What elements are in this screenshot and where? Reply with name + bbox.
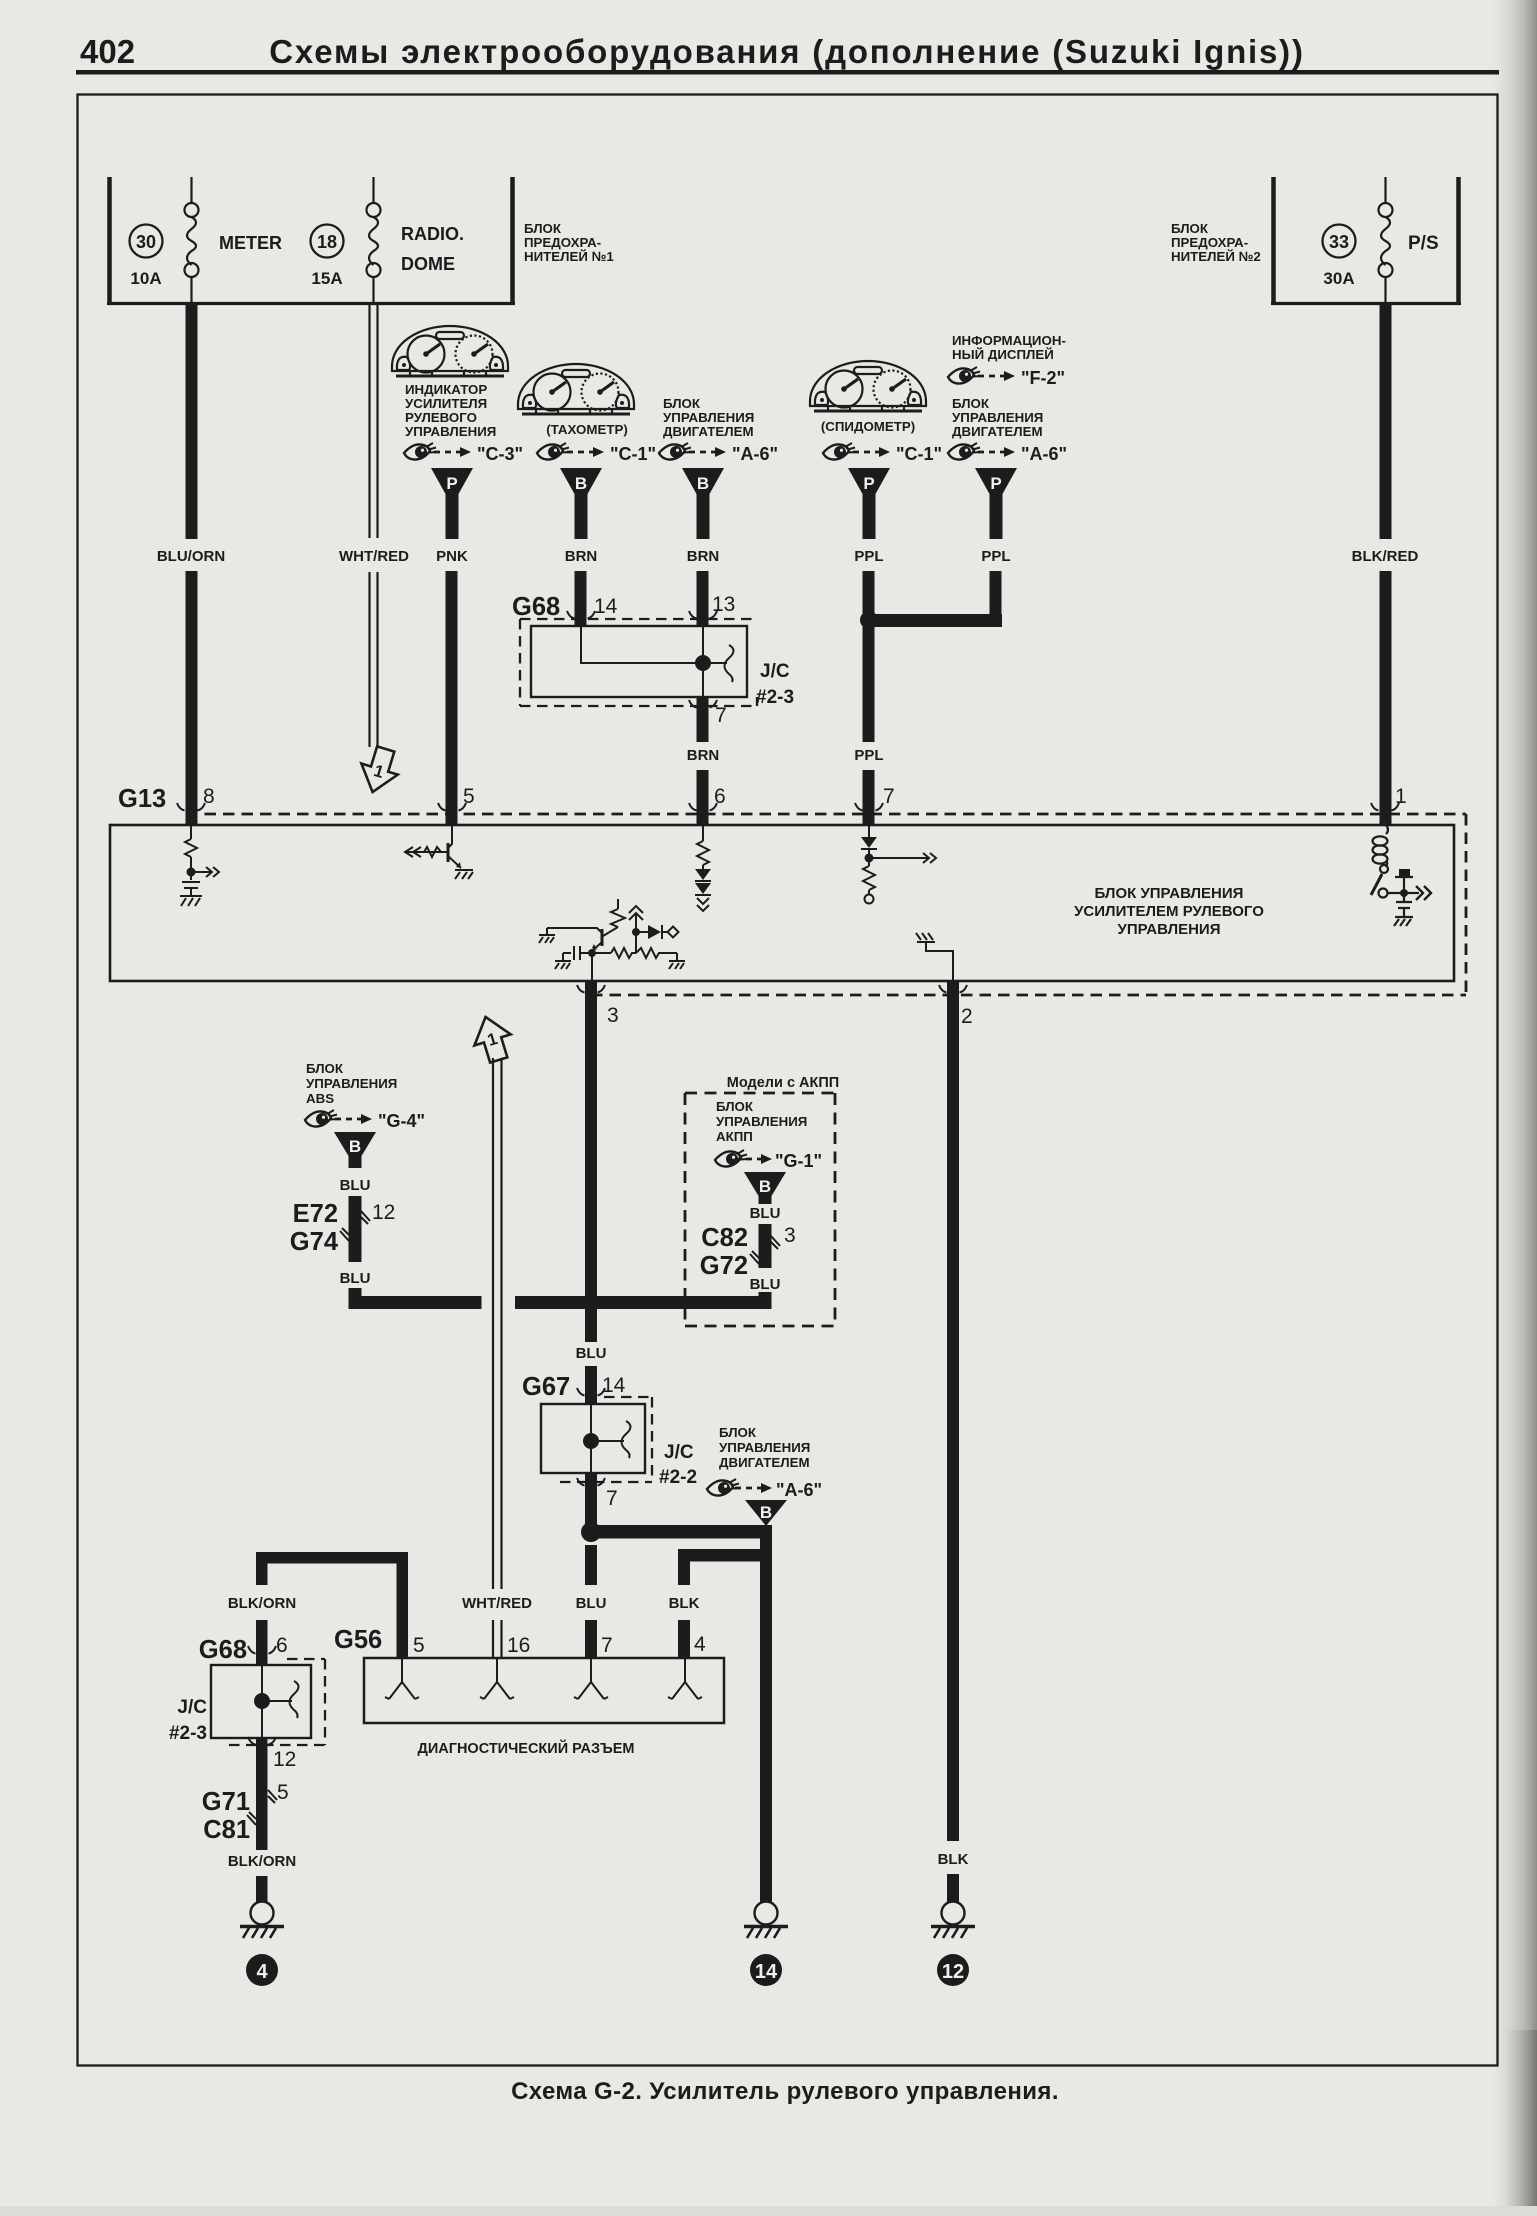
svg-text:6: 6 [714, 785, 726, 808]
svg-text:НЫЙ ДИСПЛЕЙ: НЫЙ ДИСПЛЕЙ [952, 347, 1054, 362]
svg-text:C81: C81 [203, 1816, 250, 1844]
svg-text:7: 7 [883, 785, 895, 808]
svg-text:#2-3: #2-3 [756, 687, 794, 708]
svg-text:ПРЕДОХРА-: ПРЕДОХРА- [524, 235, 601, 250]
svg-text:ДВИГАТЕЛЕМ: ДВИГАТЕЛЕМ [663, 424, 754, 439]
svg-text:НИТЕЛЕЙ №2: НИТЕЛЕЙ №2 [1171, 249, 1261, 264]
svg-text:14: 14 [602, 1374, 626, 1397]
svg-text:"G-1": "G-1" [775, 1151, 822, 1171]
svg-text:G68: G68 [512, 593, 560, 621]
svg-text:ДВИГАТЕЛЕМ: ДВИГАТЕЛЕМ [719, 1455, 810, 1470]
svg-text:BRN: BRN [687, 548, 720, 565]
svg-text:"F-2": "F-2" [1021, 368, 1065, 388]
svg-text:УСИЛИТЕЛЕМ РУЛЕВОГО: УСИЛИТЕЛЕМ РУЛЕВОГО [1074, 903, 1264, 920]
svg-text:PNK: PNK [436, 548, 468, 565]
svg-text:BLU: BLU [340, 1177, 371, 1194]
svg-text:16: 16 [507, 1634, 530, 1657]
svg-text:METER: METER [219, 233, 282, 253]
svg-text:J/C: J/C [760, 661, 790, 682]
svg-text:АКПП: АКПП [716, 1129, 753, 1144]
svg-text:#2-2: #2-2 [659, 1467, 697, 1488]
svg-text:DOME: DOME [401, 254, 455, 274]
svg-text:BLU: BLU [576, 1345, 607, 1362]
svg-text:Схема G-2. Усилитель рулевого: Схема G-2. Усилитель рулевого управления… [511, 2078, 1059, 2105]
svg-text:PPL: PPL [854, 548, 883, 565]
svg-text:G68: G68 [199, 1636, 247, 1664]
svg-text:BLK/ORN: BLK/ORN [228, 1853, 296, 1870]
svg-text:ИНФОРМАЦИОН-: ИНФОРМАЦИОН- [952, 333, 1066, 348]
svg-text:BLU/ORN: BLU/ORN [157, 548, 225, 565]
svg-text:BRN: BRN [565, 548, 598, 565]
svg-text:12: 12 [942, 1961, 964, 1983]
svg-text:УПРАВЛЕНИЯ: УПРАВЛЕНИЯ [306, 1076, 397, 1091]
svg-text:2: 2 [961, 1005, 973, 1028]
svg-text:BLK/ORN: BLK/ORN [228, 1595, 296, 1612]
svg-text:BLK: BLK [669, 1595, 700, 1612]
svg-text:B: B [759, 1177, 771, 1196]
svg-text:B: B [349, 1137, 361, 1156]
svg-text:BLU: BLU [750, 1276, 781, 1293]
svg-text:6: 6 [276, 1634, 288, 1657]
svg-text:УПРАВЛЕНИЯ: УПРАВЛЕНИЯ [952, 410, 1043, 425]
svg-text:#2-3: #2-3 [169, 1723, 207, 1744]
svg-text:"A-6": "A-6" [1021, 444, 1067, 464]
svg-text:5: 5 [277, 1781, 289, 1804]
svg-text:Схемы электрооборудования (доп: Схемы электрооборудования (дополнение (S… [269, 33, 1304, 70]
svg-text:B: B [760, 1503, 772, 1522]
svg-text:8: 8 [203, 785, 215, 808]
svg-text:G71: G71 [202, 1788, 250, 1816]
svg-text:BLK: BLK [938, 1851, 969, 1868]
svg-text:G13: G13 [118, 785, 166, 813]
svg-text:7: 7 [606, 1487, 618, 1510]
svg-text:BLK/RED: BLK/RED [1352, 548, 1419, 565]
svg-text:G72: G72 [700, 1252, 748, 1280]
svg-text:30A: 30A [1323, 269, 1354, 288]
svg-text:БЛОК: БЛОК [663, 396, 701, 411]
svg-text:PPL: PPL [854, 747, 883, 764]
svg-text:3: 3 [607, 1004, 619, 1027]
svg-text:НИТЕЛЕЙ №1: НИТЕЛЕЙ №1 [524, 249, 614, 264]
svg-text:BLU: BLU [750, 1205, 781, 1222]
svg-text:(ТАХОМЕТР): (ТАХОМЕТР) [546, 422, 628, 437]
svg-text:"A-6": "A-6" [776, 1480, 822, 1500]
svg-text:P: P [990, 474, 1001, 493]
svg-text:G56: G56 [334, 1626, 382, 1654]
svg-text:WHT/RED: WHT/RED [462, 1595, 532, 1612]
svg-text:ДВИГАТЕЛЕМ: ДВИГАТЕЛЕМ [952, 424, 1043, 439]
svg-text:G74: G74 [290, 1228, 339, 1256]
svg-text:ПРЕДОХРА-: ПРЕДОХРА- [1171, 235, 1248, 250]
svg-text:3: 3 [784, 1224, 796, 1247]
svg-text:БЛОК: БЛОК [716, 1099, 754, 1114]
svg-text:12: 12 [372, 1201, 395, 1224]
svg-text:BLU: BLU [340, 1270, 371, 1287]
svg-text:G67: G67 [522, 1373, 570, 1401]
svg-text:1: 1 [1395, 785, 1407, 808]
svg-text:"A-6": "A-6" [732, 444, 778, 464]
svg-text:10A: 10A [130, 269, 161, 288]
svg-text:УПРАВЛЕНИЯ: УПРАВЛЕНИЯ [405, 424, 496, 439]
svg-text:5: 5 [413, 1634, 425, 1657]
svg-text:БЛОК УПРАВЛЕНИЯ: БЛОК УПРАВЛЕНИЯ [1095, 885, 1244, 902]
svg-text:УПРАВЛЕНИЯ: УПРАВЛЕНИЯ [716, 1114, 807, 1129]
svg-text:J/C: J/C [664, 1442, 694, 1463]
svg-text:БЛОК: БЛОК [952, 396, 990, 411]
svg-text:B: B [575, 474, 587, 493]
svg-text:4: 4 [694, 1633, 706, 1656]
svg-text:"G-4": "G-4" [378, 1111, 425, 1131]
svg-text:УСИЛИТЕЛЯ: УСИЛИТЕЛЯ [405, 396, 487, 411]
svg-text:УПРАВЛЕНИЯ: УПРАВЛЕНИЯ [1117, 921, 1220, 938]
svg-text:P: P [446, 474, 457, 493]
svg-text:БЛОК: БЛОК [524, 221, 562, 236]
svg-text:33: 33 [1329, 232, 1349, 252]
svg-text:12: 12 [273, 1748, 296, 1771]
svg-text:WHT/RED: WHT/RED [339, 548, 409, 565]
svg-text:C82: C82 [701, 1224, 748, 1252]
svg-text:15A: 15A [311, 269, 342, 288]
svg-text:"C-3": "C-3" [477, 444, 523, 464]
svg-text:14: 14 [755, 1961, 778, 1983]
svg-text:402: 402 [80, 33, 135, 70]
svg-text:Модели с АКПП: Модели с АКПП [727, 1075, 839, 1091]
svg-text:BLU: BLU [576, 1595, 607, 1612]
svg-text:(СПИДОМЕТР): (СПИДОМЕТР) [821, 419, 915, 434]
svg-text:7: 7 [601, 1634, 613, 1657]
svg-text:БЛОК: БЛОК [719, 1425, 757, 1440]
svg-text:БЛОК: БЛОК [306, 1061, 344, 1076]
svg-text:RADIO.: RADIO. [401, 224, 464, 244]
svg-text:30: 30 [136, 232, 156, 252]
svg-text:БЛОК: БЛОК [1171, 221, 1209, 236]
svg-text:14: 14 [594, 595, 618, 618]
svg-text:ABS: ABS [306, 1091, 334, 1106]
svg-text:РУЛЕВОГО: РУЛЕВОГО [405, 410, 477, 425]
svg-text:4: 4 [256, 1961, 268, 1983]
svg-text:"C-1": "C-1" [896, 444, 942, 464]
svg-text:P/S: P/S [1408, 233, 1439, 254]
svg-text:УПРАВЛЕНИЯ: УПРАВЛЕНИЯ [719, 1440, 810, 1455]
svg-text:18: 18 [317, 232, 337, 252]
svg-text:E72: E72 [293, 1200, 338, 1228]
svg-text:ИНДИКАТОР: ИНДИКАТОР [405, 382, 487, 397]
svg-text:7: 7 [715, 704, 727, 727]
svg-text:P: P [863, 474, 874, 493]
svg-text:5: 5 [463, 785, 475, 808]
svg-text:B: B [697, 474, 709, 493]
svg-text:"C-1": "C-1" [610, 444, 656, 464]
svg-text:J/C: J/C [177, 1697, 207, 1718]
svg-text:УПРАВЛЕНИЯ: УПРАВЛЕНИЯ [663, 410, 754, 425]
svg-text:ДИАГНОСТИЧЕСКИЙ РАЗЪЕМ: ДИАГНОСТИЧЕСКИЙ РАЗЪЕМ [418, 1739, 635, 1757]
svg-text:BRN: BRN [687, 747, 720, 764]
svg-text:PPL: PPL [981, 548, 1010, 565]
